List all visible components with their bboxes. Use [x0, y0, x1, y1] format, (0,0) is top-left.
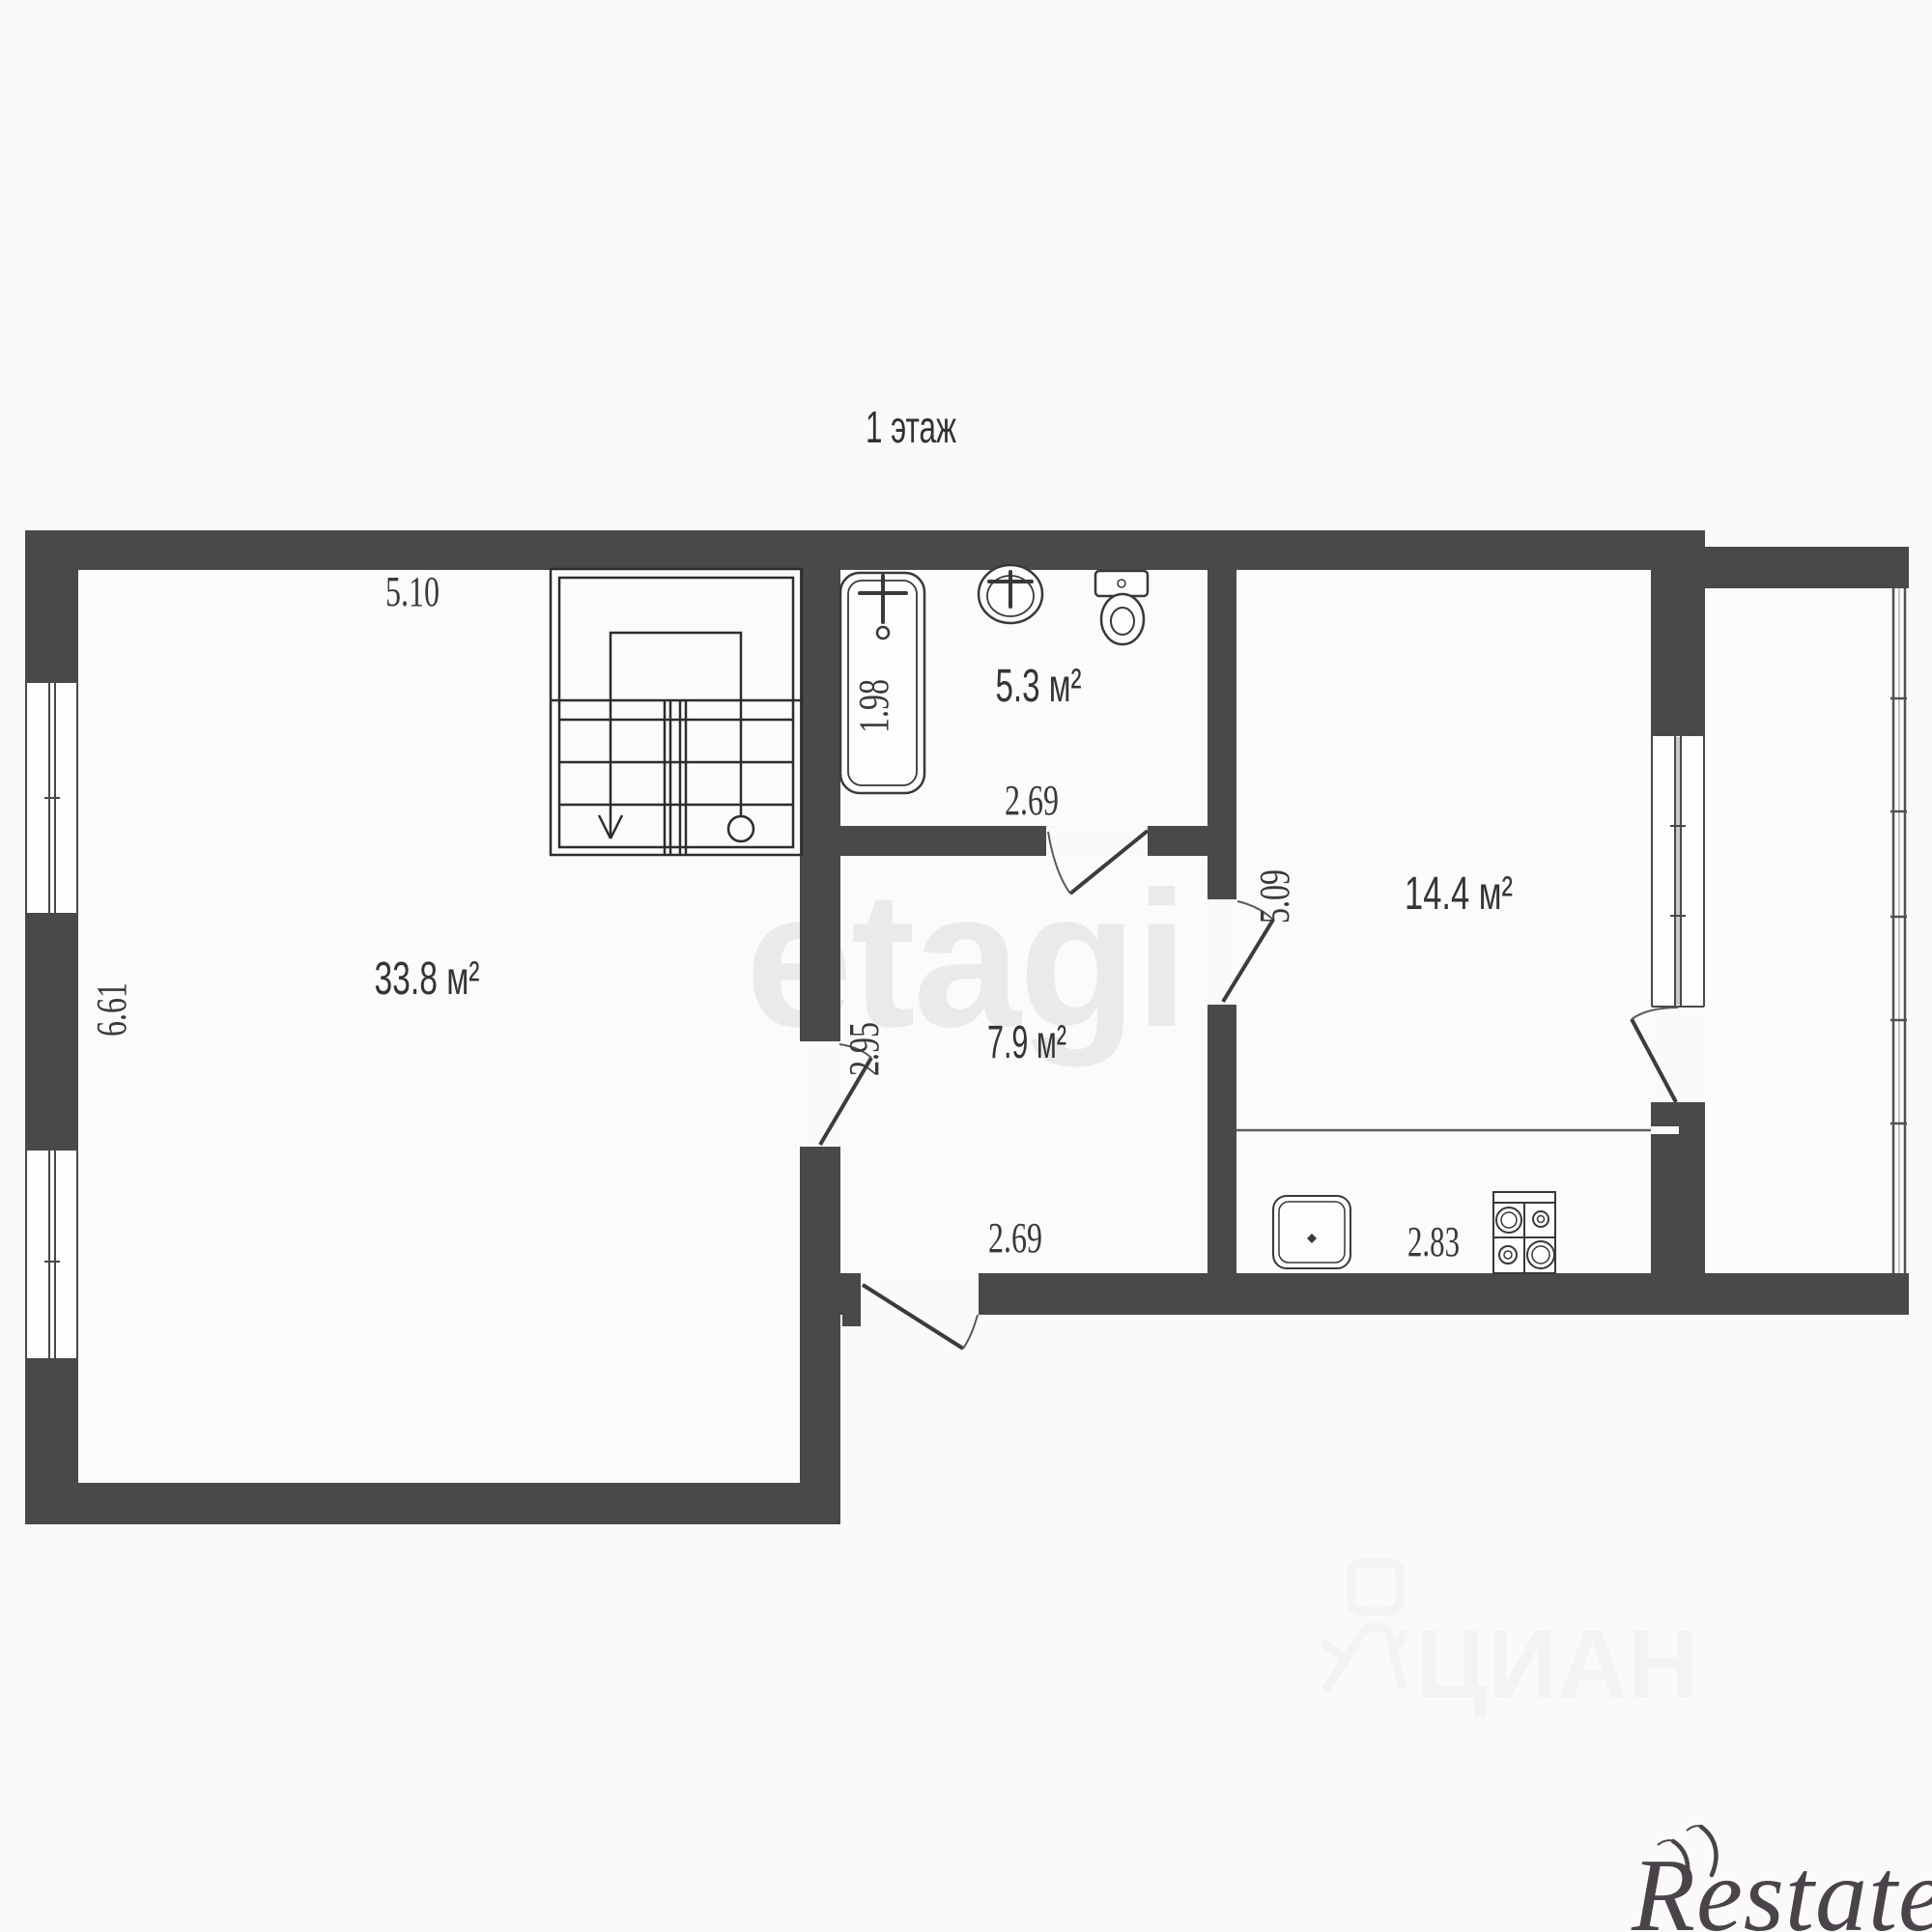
- svg-text:5.09: 5.09: [1251, 869, 1298, 923]
- svg-text:2.69: 2.69: [1005, 777, 1059, 824]
- svg-text:2.83: 2.83: [1407, 1218, 1460, 1265]
- svg-text:1.98: 1.98: [850, 679, 897, 733]
- svg-text:5.10: 5.10: [385, 568, 440, 615]
- svg-text:33.8 м²: 33.8 м²: [375, 953, 480, 1005]
- svg-text:5.3 м²: 5.3 м²: [996, 661, 1082, 712]
- svg-text:1 этаж: 1 этаж: [866, 402, 956, 452]
- svg-text:7.9 м²: 7.9 м²: [987, 1017, 1066, 1068]
- svg-text:ЦИАН: ЦИАН: [1416, 1610, 1698, 1719]
- svg-text:Restate: Restate: [1631, 1838, 1932, 1932]
- svg-text:14.4 м²: 14.4 м²: [1405, 868, 1513, 920]
- svg-text:2.95: 2.95: [840, 1022, 888, 1076]
- svg-text:2.69: 2.69: [988, 1214, 1042, 1262]
- svg-text:6.61: 6.61: [88, 982, 135, 1037]
